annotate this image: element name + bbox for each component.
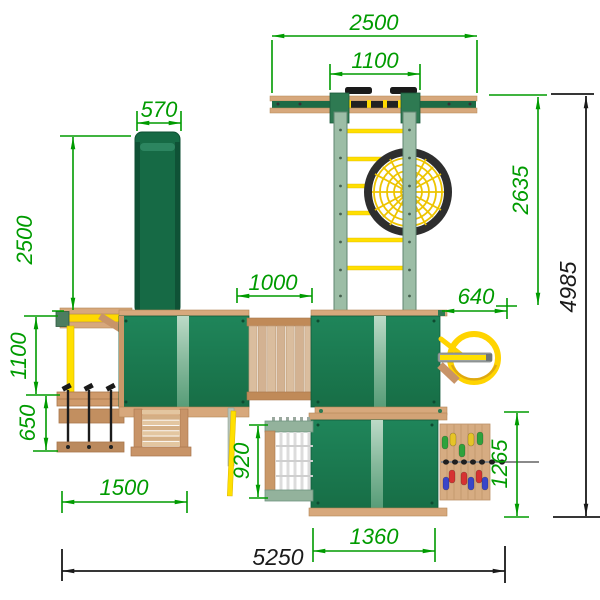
dim-label: 1000	[249, 270, 299, 295]
roof-ridge	[374, 316, 386, 407]
dim-overall-width-5250: 5250	[62, 544, 505, 583]
dim-label: 1100	[6, 332, 31, 380]
dim-wall-1265: 1265	[487, 412, 529, 517]
frame-corner-cap	[56, 312, 69, 327]
net-climber	[265, 417, 313, 501]
staircase	[131, 409, 191, 456]
top-beam	[270, 87, 477, 123]
dim-label: 1500	[100, 475, 150, 500]
swing-leg-yellow	[67, 326, 74, 392]
dim-tower-1360: 1360	[313, 524, 435, 562]
dim-slide-projection-2500: 2500	[12, 136, 131, 311]
dim-label: 920	[229, 442, 254, 479]
swing-seats	[57, 383, 124, 452]
dim-label: 1265	[487, 439, 512, 489]
main-tower-roof	[119, 310, 249, 417]
drawing-canvas: 2500 1100 570 2500 1100 650 1500 1000	[0, 0, 600, 600]
slide-rail-left	[136, 142, 141, 313]
roof-ridge	[177, 316, 189, 407]
dim-label: 1100	[351, 48, 399, 73]
dim-label: 2500	[349, 10, 400, 35]
roof-ridge	[371, 420, 383, 508]
dim-beam-height-2635: 2635	[489, 95, 547, 306]
fire-pole-ring	[438, 334, 498, 382]
playground-plan-svg: 2500 1100 570 2500 1100 650 1500 1000	[0, 0, 600, 600]
dim-label: 4985	[555, 261, 581, 312]
dim-swing-bay-1100: 1100	[6, 316, 60, 395]
dim-label: 1360	[350, 524, 400, 549]
dim-seat-zone-650: 650	[15, 396, 58, 451]
dim-label: 570	[141, 97, 178, 122]
slide	[135, 132, 180, 314]
upper-tower-roof	[311, 310, 447, 415]
dim-bridge-1000: 1000	[237, 270, 312, 303]
dim-top-inner-1100: 1100	[330, 48, 420, 90]
dim-label: 650	[15, 404, 40, 441]
slide-curve-highlight	[140, 143, 175, 151]
dim-label: 640	[458, 284, 495, 309]
dim-slide-width-570: 570	[137, 97, 181, 131]
dim-overall-depth-4985: 4985	[551, 94, 600, 517]
slide-rail-right	[175, 142, 180, 313]
dim-label: 5250	[252, 544, 303, 570]
dim-pole-offset-640: 640	[442, 284, 507, 319]
stair-base	[131, 447, 191, 456]
dim-swing-frame-1500: 1500	[62, 475, 187, 513]
bridge	[247, 318, 313, 400]
dim-label: 2635	[508, 165, 533, 216]
lower-tower-roof	[309, 409, 447, 516]
dim-label: 2500	[12, 215, 37, 266]
